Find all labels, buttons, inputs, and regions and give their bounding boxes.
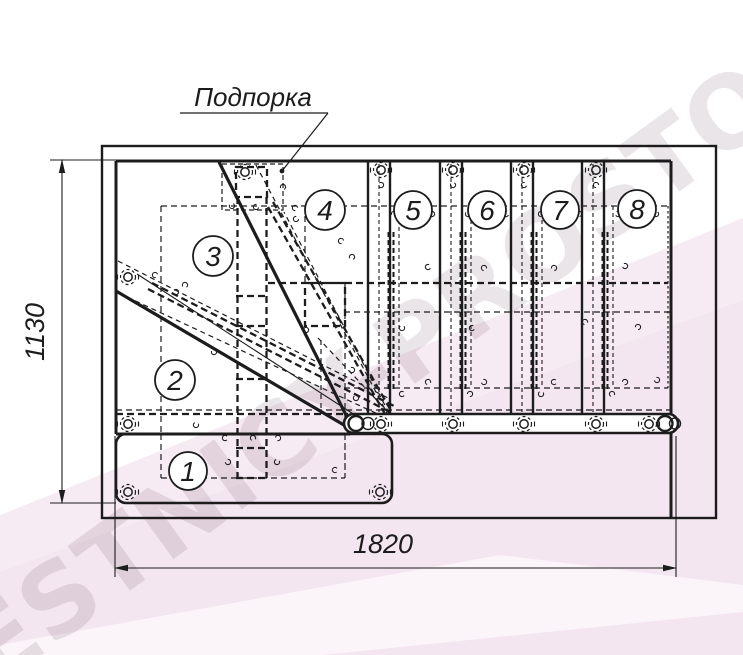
step-circle-1: 1 bbox=[169, 452, 207, 490]
arrow-up-icon bbox=[59, 159, 65, 173]
stringer-beam bbox=[511, 161, 542, 414]
step-number-label: 8 bbox=[629, 194, 645, 225]
step-circle-2: 2 bbox=[155, 360, 195, 400]
step-circle-3: 3 bbox=[193, 236, 233, 276]
screw-mark bbox=[481, 265, 487, 271]
arrow-down-icon bbox=[59, 490, 65, 504]
fastener-icon bbox=[118, 417, 139, 432]
fastener-icon bbox=[514, 163, 535, 178]
step-circle-6: 6 bbox=[468, 191, 506, 229]
screw-mark bbox=[338, 238, 344, 244]
step-number-label: 6 bbox=[479, 195, 495, 226]
stringer-beam bbox=[582, 161, 613, 414]
screw-mark bbox=[225, 459, 231, 465]
screw-mark bbox=[274, 459, 281, 466]
screw-mark bbox=[425, 264, 432, 271]
step-number-label: 4 bbox=[317, 195, 333, 226]
screw-mark bbox=[377, 181, 384, 188]
fastener-icon bbox=[371, 163, 392, 178]
leader-dot bbox=[280, 169, 285, 174]
screw-mark bbox=[253, 204, 259, 210]
screw-mark bbox=[582, 319, 588, 325]
step-circle-7: 7 bbox=[541, 191, 579, 229]
fastener-icon bbox=[118, 270, 139, 285]
step-number-label: 5 bbox=[405, 195, 421, 226]
step-circle-5: 5 bbox=[394, 191, 432, 229]
fastener-icon bbox=[443, 163, 464, 178]
screw-mark bbox=[192, 421, 199, 428]
screw-mark bbox=[293, 216, 299, 222]
screw-mark bbox=[550, 378, 557, 385]
blueprint-stage: LESTNICY-PROSTO.RU bbox=[0, 0, 743, 655]
screw-mark bbox=[181, 281, 188, 288]
screw-mark bbox=[349, 367, 356, 374]
screw-mark bbox=[468, 324, 475, 331]
fastener-icon bbox=[370, 485, 391, 500]
dim-width-value: 1820 bbox=[353, 529, 413, 559]
screw-mark bbox=[152, 272, 158, 278]
step-number-label: 1 bbox=[180, 456, 196, 487]
staircase-plan-drawing: 12345678 1130 1820 Подпорка bbox=[0, 0, 743, 655]
screw-mark bbox=[622, 263, 629, 270]
screw-mark bbox=[521, 182, 527, 188]
bottom-rail bbox=[344, 414, 681, 433]
screw-mark bbox=[249, 434, 256, 441]
screw-mark bbox=[348, 253, 355, 260]
screw-mark bbox=[551, 265, 557, 271]
lower-landing-panel bbox=[116, 434, 392, 503]
step-number-label: 3 bbox=[205, 241, 221, 272]
step-circle-4: 4 bbox=[305, 190, 345, 230]
screw-mark bbox=[622, 379, 628, 385]
arrow-right-icon bbox=[663, 565, 677, 571]
arrow-left-icon bbox=[114, 565, 128, 571]
screw-mark bbox=[593, 182, 598, 187]
screw-mark bbox=[537, 390, 544, 397]
stringer-beam bbox=[440, 161, 471, 414]
support-label: Подпорка bbox=[194, 82, 312, 112]
step-circle-8: 8 bbox=[618, 190, 656, 228]
fastener-icon bbox=[118, 485, 139, 500]
screw-mark bbox=[425, 379, 432, 386]
screw-mark bbox=[275, 435, 281, 441]
screw-mark bbox=[467, 391, 472, 396]
screw-mark bbox=[635, 324, 641, 330]
step-number-label: 2 bbox=[166, 365, 183, 396]
screw-mark bbox=[609, 391, 616, 398]
screw-mark bbox=[398, 390, 405, 397]
dim-height-value: 1130 bbox=[20, 303, 50, 361]
screw-mark bbox=[481, 379, 487, 385]
screw-mark bbox=[331, 466, 338, 473]
screw-mark bbox=[654, 377, 660, 383]
step-number-label: 7 bbox=[552, 195, 569, 226]
dimension-height bbox=[50, 159, 116, 504]
